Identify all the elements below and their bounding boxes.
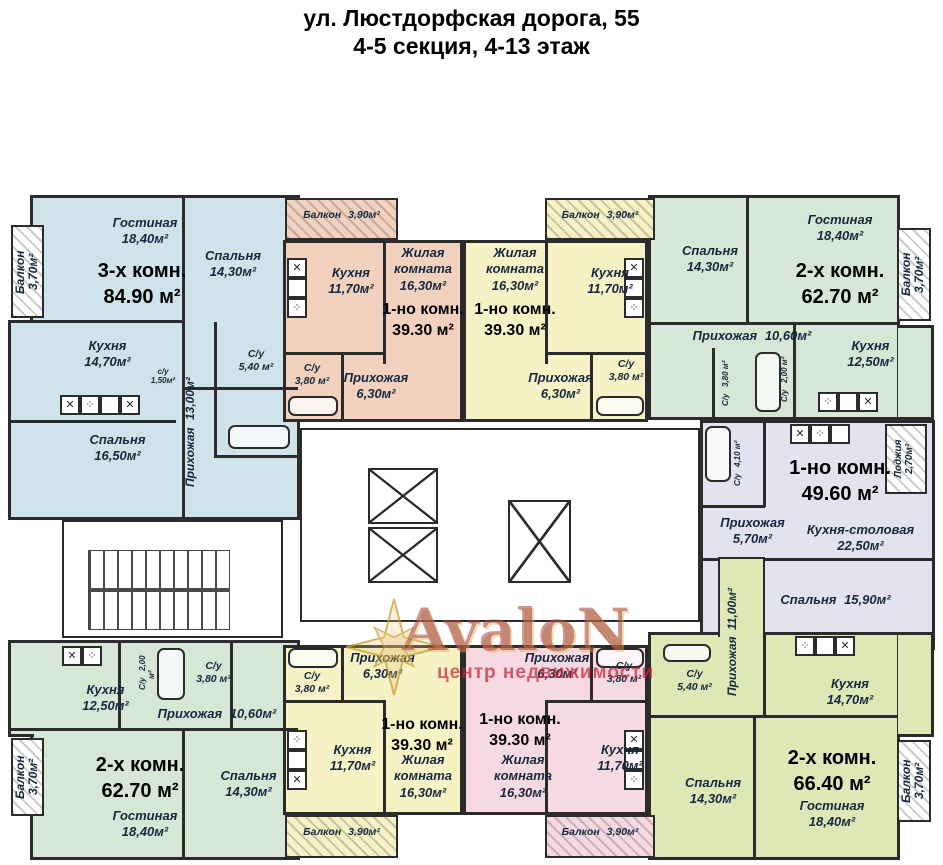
room-label: С/у 3,80 м²	[600, 358, 652, 384]
bathtub	[755, 352, 781, 412]
room-label: С/у 5,40 м²	[662, 668, 727, 694]
room-label: Гостиная 18,40м²	[780, 212, 900, 245]
kitchen-counter: ✕⁘	[790, 424, 850, 444]
room-label: Жилая комната 16,30м²	[385, 245, 461, 294]
bathtub	[663, 644, 711, 662]
balcony-label: Балкон 3,70м²	[900, 232, 926, 317]
elevator-shaft	[368, 527, 438, 583]
apartment-total: 2-х комн. 62.70 м²	[65, 752, 215, 804]
elevator-shaft	[368, 468, 438, 524]
room-label: Прихожая 6,30м²	[335, 370, 417, 403]
room-label-vertical: С/у 4,10 м²	[734, 436, 748, 491]
bathtub	[596, 396, 644, 416]
room-label: Спальня 14,30м²	[196, 768, 301, 801]
room-label: Прихожая 10,60м²	[152, 706, 282, 722]
room-label: Кухня 12,50м²	[818, 338, 923, 371]
staircase	[88, 550, 230, 630]
loggia-label: Лоджия 2,70м²	[893, 428, 919, 490]
room-label: с/у 1,50м²	[143, 368, 183, 386]
kitchen-counter: ✕⁘✕	[60, 395, 140, 415]
room-label: Спальня 15,90м²	[768, 592, 903, 608]
room-label: Прихожая 6,30м²	[518, 370, 603, 403]
bathtub	[288, 648, 338, 668]
room-label: С/у 3,80 м²	[186, 660, 241, 686]
room-label: Гостиная 18,40м²	[75, 215, 215, 248]
room-label-vertical: Прихожая 11,00м²	[726, 562, 752, 722]
room-label: Кухня 14,70м²	[50, 338, 165, 371]
room-label-vertical: С/у 2,00 м²	[781, 350, 795, 408]
apartment-total: 1-но комн. 39.30 м²	[380, 300, 466, 342]
room-label: Жилая комната 16,30м²	[470, 245, 560, 294]
apartment-green-bl-ext	[8, 640, 34, 737]
balcony-label: Балкон 3,70м²	[14, 228, 40, 316]
kitchen-counter: ✕⁘	[62, 646, 102, 666]
apartment-total: 1-но комн. 39.30 м²	[463, 300, 567, 342]
apartment-total: 2-х комн. 62.70 м²	[772, 258, 908, 310]
room-label-vertical: С/у 3,80 м²	[722, 352, 744, 414]
apartment-total: 1-но комн. 49.60 м²	[772, 455, 908, 507]
page-title: ул. Люстдорфская дорога, 55 4-5 секция, …	[0, 4, 943, 60]
balcony-label: Балкон 3,90м²	[290, 826, 393, 839]
elevator-shaft	[508, 500, 571, 583]
bathtub	[228, 425, 290, 449]
room-area: 18,40м²	[75, 231, 215, 247]
room-name: Гостиная	[75, 215, 215, 231]
central-corridor	[300, 428, 700, 622]
room-label: Прихожая 5,70м²	[710, 515, 795, 548]
room-label: Гостиная 18,40м²	[772, 798, 892, 831]
balcony-label: Балкон 3,90м²	[550, 826, 650, 839]
bathtub	[705, 426, 731, 482]
room-label: Прихожая 6,30м²	[340, 650, 425, 683]
room-label: Прихожая 10,60м²	[672, 328, 832, 344]
bathtub	[288, 396, 338, 416]
room-label: Кухня 11,70м²	[570, 742, 670, 775]
kitchen-counter: ⁘✕	[818, 392, 878, 412]
floor-plan-page: ул. Люстдорфская дорога, 55 4-5 секция, …	[0, 0, 943, 865]
room-label: Жилая комната 16,30м²	[478, 752, 568, 801]
room-label: С/у 3,80 м²	[286, 670, 338, 696]
balcony-label: Балкон 3,70м²	[14, 740, 40, 814]
balcony-label: Балкон 3,90м²	[290, 209, 393, 222]
title-address: ул. Люстдорфская дорога, 55	[0, 4, 943, 32]
apartment-total: 2-х комн. 66.40 м²	[762, 745, 902, 797]
room-label-vertical: С/у 2,00 м²	[139, 650, 153, 698]
kitchen-counter: ⁘✕	[795, 636, 855, 656]
title-section: 4-5 секция, 4-13 этаж	[0, 32, 943, 60]
room-label: С/у 5,40 м²	[222, 348, 290, 374]
room-label: Спальня 16,50м²	[55, 432, 180, 465]
apartment-total: 1-но комн. 39.30 м²	[468, 710, 572, 752]
balcony-label: Балкон 3,70м²	[900, 742, 926, 820]
room-label: С/у 3,80 м²	[286, 362, 338, 388]
balcony-label: Балкон 3,90м²	[550, 209, 650, 222]
room-label-vertical: Прихожая 13,00м²	[184, 368, 210, 496]
room-label: Кухня 14,70м²	[790, 676, 910, 709]
room-label: Прихожая 6,30м²	[512, 650, 602, 683]
room-label: Спальня 14,30м²	[658, 775, 768, 808]
room-label: Гостиная 18,40м²	[80, 808, 210, 841]
room-label: Жилая комната 16,30м²	[385, 752, 461, 801]
room-label: Спальня 14,30м²	[655, 243, 765, 276]
room-label: Кухня 11,70м²	[560, 265, 660, 298]
apartment-total: 3-х комн. 84.90 м²	[62, 258, 222, 310]
room-label: С/у 3,80 м²	[598, 660, 650, 686]
room-label: Кухня-столовая 22,50м²	[798, 522, 923, 555]
